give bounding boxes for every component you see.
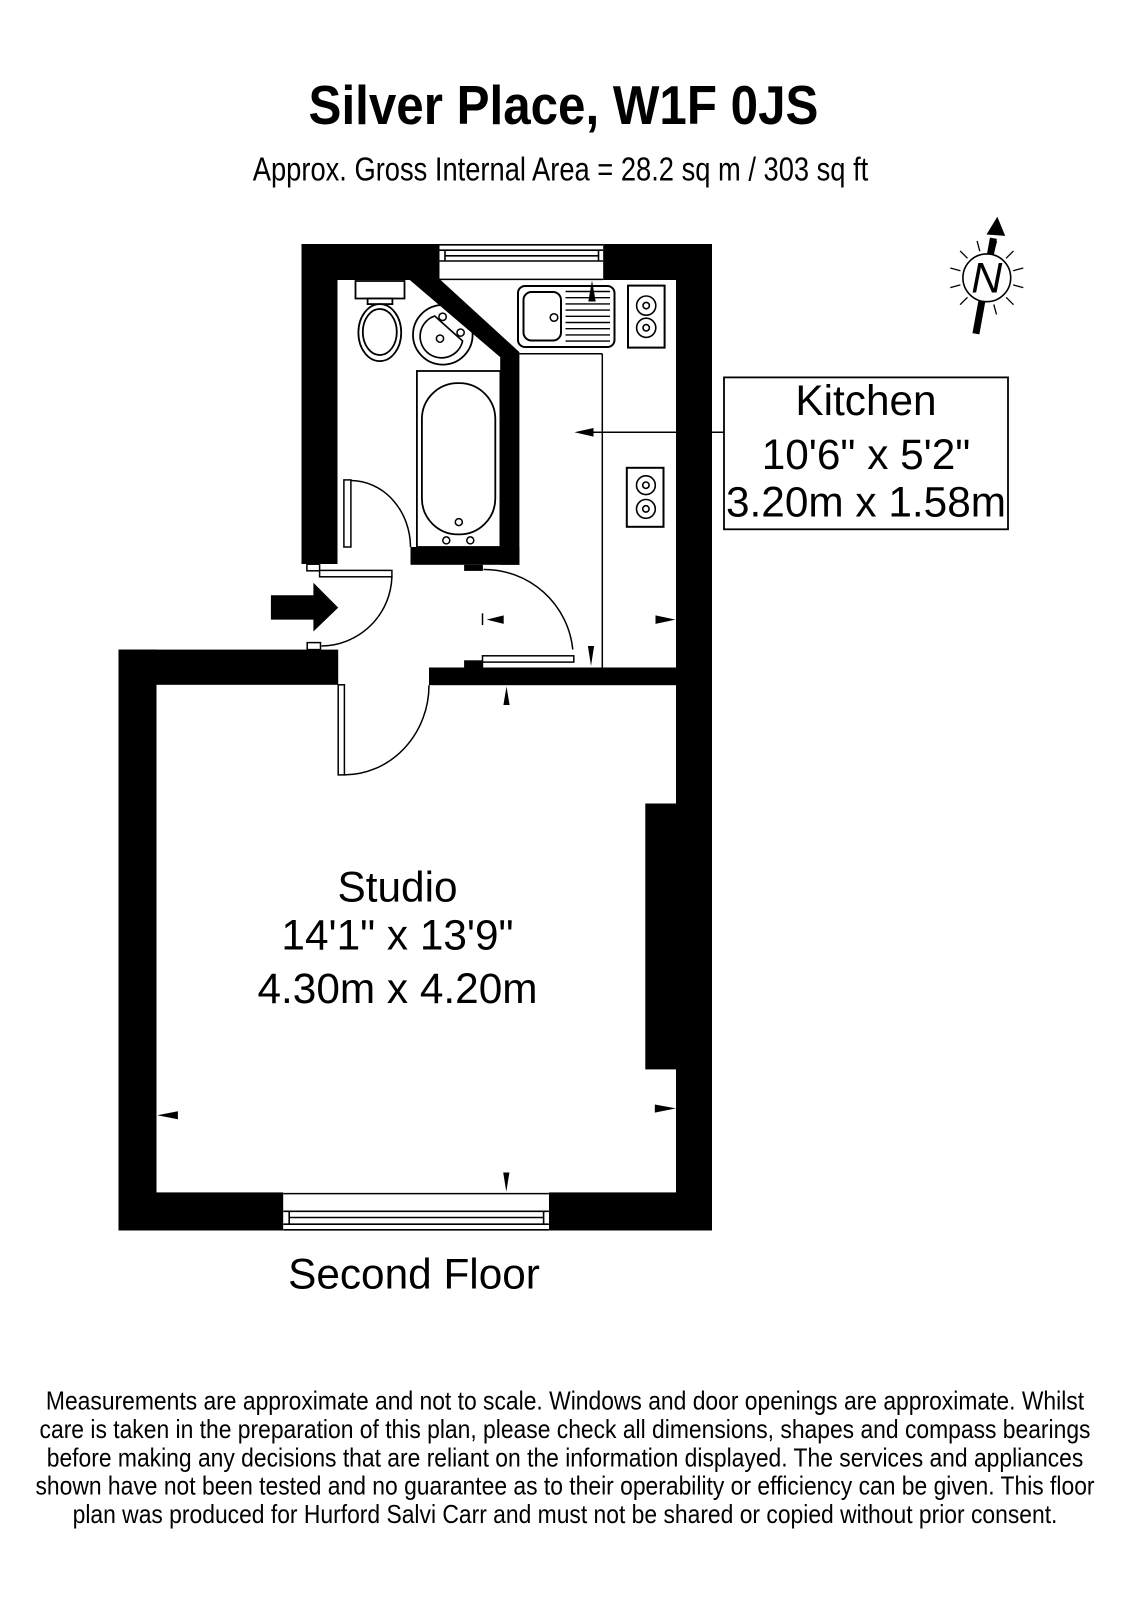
- svg-text:10'6" x 5'2": 10'6" x 5'2": [762, 431, 971, 479]
- svg-text:3.20m x 1.58m: 3.20m x 1.58m: [726, 478, 1006, 526]
- svg-text:14'1" x 13'9": 14'1" x 13'9": [281, 911, 513, 959]
- svg-text:before making any decisions th: before making any decisions that are rel…: [47, 1444, 1084, 1473]
- svg-text:Kitchen: Kitchen: [795, 377, 936, 425]
- svg-text:care is taken in the preparati: care is taken in the preparation of this…: [40, 1416, 1091, 1445]
- svg-text:Studio: Studio: [337, 863, 457, 911]
- svg-text:plan was produced for Hurford: plan was produced for Hurford Salvi Carr…: [73, 1501, 1058, 1530]
- svg-text:4.30m x 4.20m: 4.30m x 4.20m: [257, 965, 537, 1013]
- svg-text:Second Floor: Second Floor: [288, 1250, 540, 1298]
- svg-text:Measurements are approximate a: Measurements are approximate and not to …: [46, 1387, 1084, 1416]
- svg-text:Approx. Gross Internal Area =: Approx. Gross Internal Area = 28.2 sq m …: [253, 151, 869, 188]
- svg-text:N: N: [971, 255, 1003, 303]
- svg-text:shown have not been tested and: shown have not been tested and no guaran…: [35, 1472, 1094, 1501]
- svg-text:Silver Place, W1F 0JS: Silver Place, W1F 0JS: [309, 76, 819, 137]
